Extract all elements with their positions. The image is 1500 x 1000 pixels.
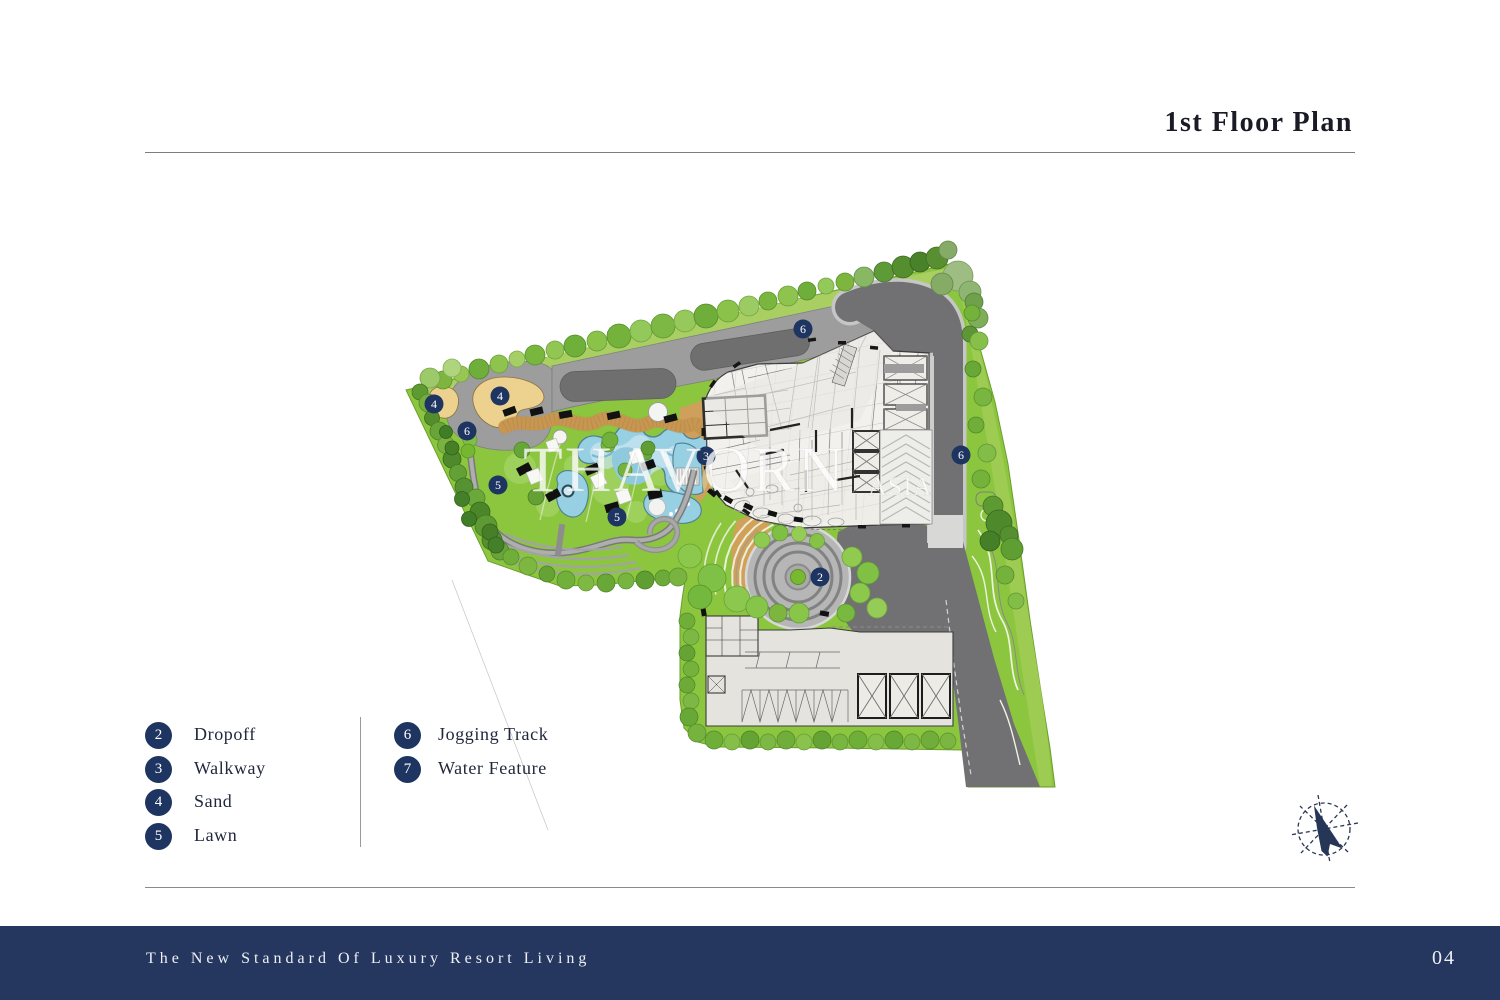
svg-text:5: 5 [614, 510, 620, 524]
svg-text:6: 6 [958, 448, 964, 462]
svg-text:4: 4 [497, 389, 503, 403]
svg-text:6: 6 [800, 322, 806, 336]
svg-text:5: 5 [495, 478, 501, 492]
svg-text:2: 2 [817, 570, 823, 584]
svg-text:ASIA: ASIA [868, 472, 933, 501]
svg-text:4: 4 [431, 397, 437, 411]
svg-text:THAVORN: THAVORN [523, 434, 846, 506]
svg-text:6: 6 [464, 424, 470, 438]
